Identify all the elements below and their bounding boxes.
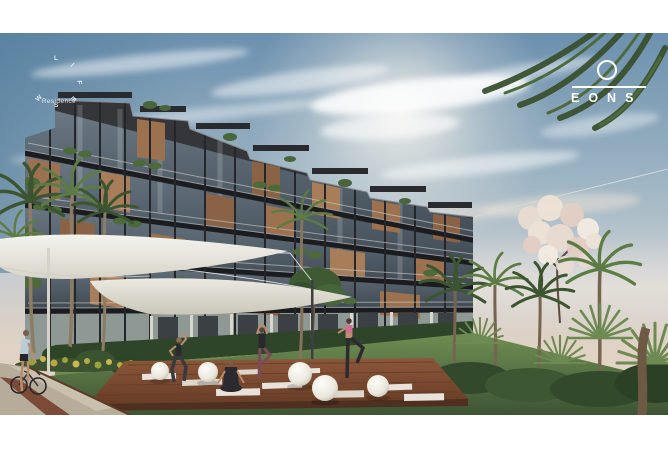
- palm-trunk: [642, 328, 646, 415]
- render-photo: L I F E S W Residence EONS: [0, 33, 668, 415]
- eons-logo: EONS: [560, 53, 660, 133]
- eons-ring-icon: [597, 60, 617, 80]
- eons-logo-divider: [572, 86, 646, 88]
- watermark-arc-letter: L: [54, 55, 58, 62]
- page: { "brand": { "logo_text": "EONS" }, "wat…: [0, 0, 668, 452]
- sail-post: [311, 280, 314, 365]
- watermark-arc-letter: F: [75, 80, 82, 85]
- watermark-arc-letter: I: [69, 62, 75, 68]
- eons-logo-text: EONS: [571, 91, 657, 105]
- watermark-center-text: Residence: [28, 98, 90, 105]
- sail-pole: [47, 248, 50, 383]
- residence-watermark: L I F E S W Residence: [24, 53, 102, 125]
